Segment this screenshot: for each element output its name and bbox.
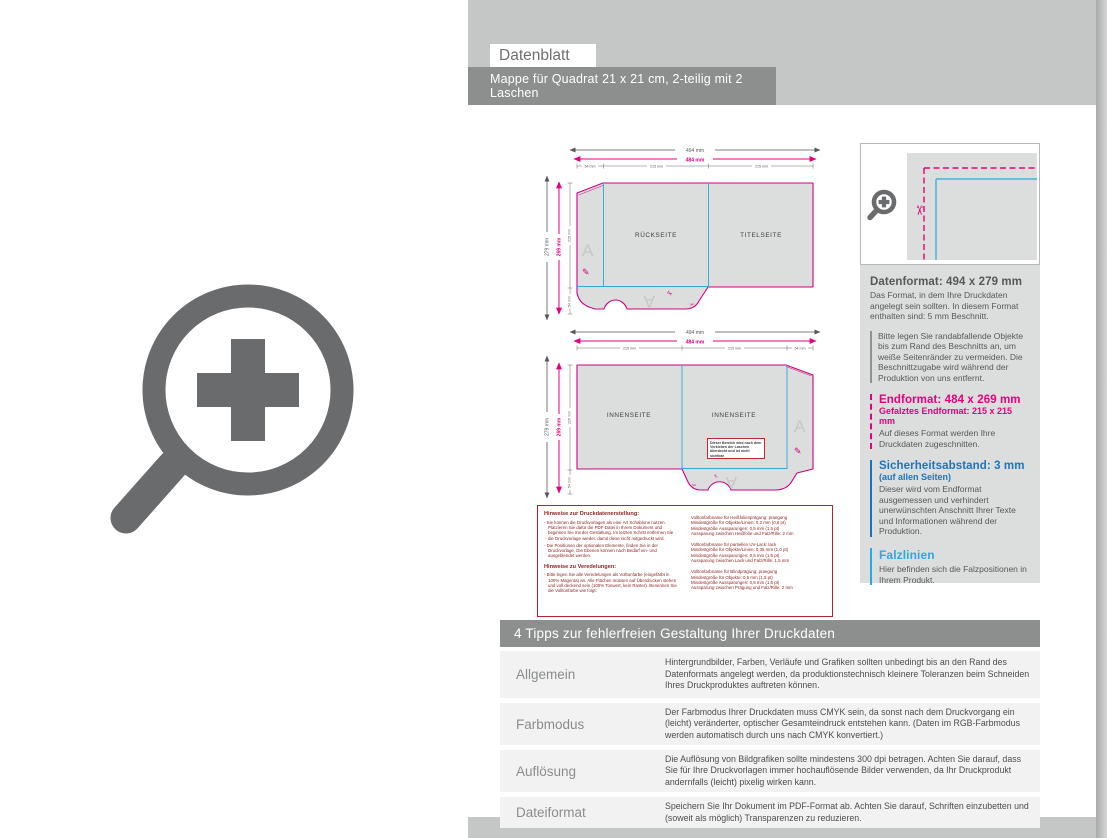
dim-seg-v-panel: 215 mm bbox=[568, 411, 572, 424]
tips-header: 4 Tipps zur fehlerfreien Gestaltung Ihre… bbox=[500, 620, 1040, 647]
dim-seg-flap: 54 mm bbox=[795, 346, 806, 350]
dim-seg-panel: 215 mm bbox=[623, 346, 636, 350]
tips-row-text: Der Farbmodus Ihrer Druckdaten muss CMYK… bbox=[665, 701, 1040, 748]
datasheet-screenshot: Datenblatt Mappe für Quadrat 21 x 21 cm,… bbox=[0, 0, 1117, 838]
notes-item: - Bitte legen Sie alle Veredelungen als … bbox=[544, 572, 679, 593]
dim-seg-panel: 215 mm bbox=[728, 346, 741, 350]
notes-spec-block: Volltonfarbname für Blindprägung: praegu… bbox=[691, 569, 826, 590]
datenformat-heading: Datenformat: 494 x 279 mm bbox=[870, 276, 1030, 288]
dim-height-inner: 269 mm bbox=[557, 237, 563, 256]
corner-detail-preview: ✂ bbox=[860, 143, 1040, 265]
panel-label-innenseite: INNENSEITE bbox=[712, 412, 756, 419]
tips-row-label: Auflösung bbox=[500, 764, 665, 779]
product-title-bar: Mappe für Quadrat 21 x 21 cm, 2-teilig m… bbox=[468, 67, 776, 105]
notes-item: - Sie können die Druckvorlagen als eine … bbox=[544, 520, 679, 541]
panel-label-titelseite: TITELSEITE bbox=[740, 232, 782, 239]
watermark-a: A bbox=[794, 417, 806, 436]
scissors-icon: ✂ bbox=[692, 483, 696, 489]
outside-shape bbox=[577, 183, 813, 309]
endformat-body: Auf dieses Format werden Ihre Druckdaten… bbox=[879, 428, 1030, 449]
notes-column-left: Hinweise zur Druckdatenerstellung: - Sie… bbox=[538, 506, 685, 616]
pen-icon: ✎ bbox=[582, 267, 590, 277]
watermark-a: A bbox=[582, 241, 594, 260]
inside-shape bbox=[577, 365, 813, 490]
tips-row-farbmodus: Farbmodus Der Farbmodus Ihrer Druckdaten… bbox=[500, 703, 1040, 745]
panel-label-rueckseite: RÜCKSEITE bbox=[635, 231, 677, 239]
page-edge-shadow bbox=[1096, 0, 1107, 838]
endformat-section: Endformat: 484 x 269 mm Gefalztes Endfor… bbox=[870, 394, 1030, 449]
dim-height-outer: 279 mm bbox=[545, 418, 551, 436]
notes-title: Hinweise zur Druckdatenerstellung: bbox=[544, 511, 679, 518]
dim-height-outer: 279 mm bbox=[545, 238, 551, 256]
tips-row-text: Die Auflösung von Bildgrafiken sollte mi… bbox=[665, 748, 1040, 795]
coverage-warning-note: Dieser Bereich wird nach dem Verkleben d… bbox=[707, 438, 765, 459]
watermark-a-rotated: A bbox=[643, 292, 655, 311]
falzlinien-section: Falzlinien Hier befinden sich die Falzpo… bbox=[870, 548, 1030, 585]
zoom-plus-icon-small bbox=[870, 192, 894, 218]
dim-width-outer: 494 mm bbox=[686, 148, 704, 154]
dim-seg-panel: 215 mm bbox=[650, 164, 663, 168]
tips-row-label: Allgemein bbox=[500, 667, 665, 682]
diagram-inside: 494 mm 484 mm 215 mm 215 mm 54 mm 279 mm bbox=[537, 322, 837, 502]
notes-column-right: Volltonfarbname für Heißfolienprägung: p… bbox=[685, 506, 832, 616]
datenformat-section: Datenformat: 494 x 279 mm Das Format, in… bbox=[870, 276, 1030, 383]
pen-icon: ✎ bbox=[794, 446, 802, 456]
datasheet-page: Datenblatt Mappe für Quadrat 21 x 21 cm,… bbox=[468, 0, 1096, 838]
tips-row-dateiformat: Dateiformat Speichern Sie Ihr Dokument i… bbox=[500, 797, 1040, 828]
notes-spec-block: Volltonfarbname für partiellen UV-Lack: … bbox=[691, 542, 826, 563]
tips-row-label: Dateiformat bbox=[500, 805, 665, 820]
tips-row-aufloesung: Auflösung Die Auflösung von Bildgrafiken… bbox=[500, 750, 1040, 792]
dim-width-outer: 494 mm bbox=[686, 330, 704, 336]
tips-row-text: Hintergrundbilder, Farben, Verläufe und … bbox=[665, 651, 1040, 698]
scissors-icon: ✂ bbox=[912, 205, 927, 216]
falzlinien-body: Hier befinden sich die Falzpositionen in… bbox=[879, 564, 1030, 585]
dim-seg-flap: 54 mm bbox=[585, 164, 596, 168]
format-info-panel: Datenformat: 494 x 279 mm Das Format, in… bbox=[860, 265, 1040, 583]
tips-table: Allgemein Hintergrundbilder, Farben, Ver… bbox=[500, 651, 1040, 833]
sicherheitsabstand-body: Dieser wird vom Endformat ausgemessen un… bbox=[879, 484, 1030, 537]
watermark-a-rotated: A bbox=[725, 473, 737, 492]
product-title: Mappe für Quadrat 21 x 21 cm, 2-teilig m… bbox=[468, 67, 776, 100]
falzlinien-heading: Falzlinien bbox=[879, 548, 1030, 562]
dim-seg-v-flap: 54 mm bbox=[568, 296, 572, 307]
datenformat-tip: Bitte legen Sie randabfallende Objekte b… bbox=[870, 331, 1030, 384]
datenformat-body: Das Format, in dem Ihre Druckdaten angel… bbox=[870, 290, 1030, 322]
dim-seg-v-panel: 215 mm bbox=[568, 229, 572, 242]
dim-seg-v-flap: 54 mm bbox=[568, 477, 572, 488]
tips-row-label: Farbmodus bbox=[500, 717, 665, 732]
dim-height-inner: 269 mm bbox=[557, 417, 563, 436]
endformat-heading: Endformat: 484 x 269 mm bbox=[879, 394, 1030, 406]
tips-row-allgemein: Allgemein Hintergrundbilder, Farben, Ver… bbox=[500, 651, 1040, 698]
endformat-subheading: Gefalztes Endformat: 215 x 215 mm bbox=[879, 406, 1030, 426]
notes-title: Hinweise zu Veredelungen: bbox=[544, 564, 679, 571]
dim-width-inner: 484 mm bbox=[686, 157, 705, 163]
notes-item: - Die Positionen der optionalen Elemente… bbox=[544, 543, 679, 559]
product-subtitle: 4/0farbig (Außenseite bedruckt) mit Vere… bbox=[468, 100, 776, 113]
panel-label-innenseite: INNENSEITE bbox=[607, 412, 651, 419]
dim-seg-panel: 215 mm bbox=[755, 164, 768, 168]
zoom-plus-icon bbox=[100, 262, 400, 562]
dim-width-inner: 484 mm bbox=[686, 339, 705, 345]
notes-spec-block: Volltonfarbname für Heißfolienprägung: p… bbox=[691, 515, 826, 536]
sicherheitsabstand-heading: Sicherheitsabstand: 3 mm bbox=[879, 460, 1030, 472]
production-notes-box: Hinweise zur Druckdatenerstellung: - Sie… bbox=[537, 505, 833, 617]
diagram-outside: 494 mm 484 mm 54 mm 215 mm 215 mm 279 mm bbox=[537, 140, 837, 325]
tips-row-text: Speichern Sie Ihr Dokument im PDF-Format… bbox=[665, 795, 1040, 830]
sicherheitsabstand-subheading: (auf allen Seiten) bbox=[879, 472, 1030, 482]
page-title: Datenblatt bbox=[490, 44, 596, 68]
sicherheitsabstand-section: Sicherheitsabstand: 3 mm (auf allen Seit… bbox=[870, 460, 1030, 537]
